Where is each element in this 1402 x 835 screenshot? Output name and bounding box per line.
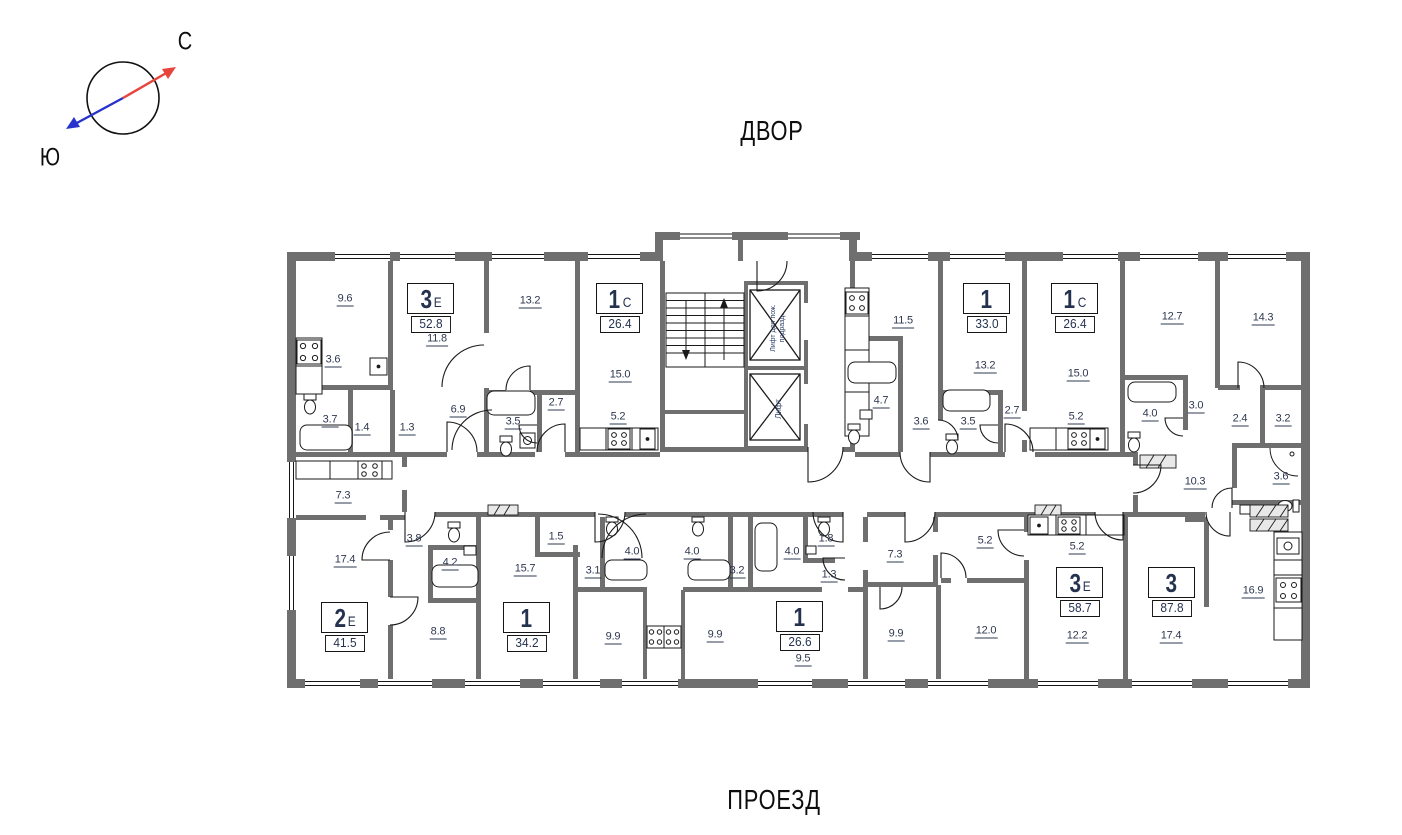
toilet-icon [848, 424, 860, 444]
bathtub-icon [300, 425, 352, 450]
apartment-tag: 3Е 58.7 [1056, 567, 1103, 617]
stove-icon [297, 340, 321, 364]
bathtub-icon [605, 560, 647, 580]
apartment-type: 2 [334, 605, 346, 631]
bathtub-icon [1128, 382, 1176, 402]
room-area-label: 17.4 [1160, 631, 1183, 644]
apartment-type-suffix: С [622, 295, 631, 309]
apartment-tag: 3Е 52.8 [407, 283, 454, 333]
room-area-label: 9.9 [707, 630, 724, 643]
compass-north-label: С [178, 28, 192, 57]
room-area-label: 3.7 [322, 415, 339, 428]
bathtub-icon [848, 362, 896, 383]
apartment-area: 26.6 [780, 634, 820, 651]
fridge-icon [1090, 429, 1105, 449]
apartment-type: 3 [1166, 570, 1178, 596]
stove-icon [608, 429, 630, 449]
room-area-label: 9.6 [337, 294, 354, 307]
apartment-type: 3 [1069, 570, 1081, 596]
room-area-label: 10.3 [1184, 477, 1207, 490]
apartment-area: 58.7 [1060, 600, 1100, 617]
room-area-label: 2.4 [1232, 414, 1249, 427]
apartment-area: 26.4 [600, 316, 640, 333]
room-area-label: 1.3 [821, 570, 838, 583]
stove-icon [1276, 578, 1301, 602]
room-area-label: 5.2 [1068, 412, 1085, 425]
room-area-label: 6.9 [450, 405, 467, 418]
room-area-label: 13.2 [519, 296, 542, 309]
room-area-label: 4.7 [873, 396, 890, 409]
apartment-type: 3 [420, 286, 432, 312]
room-area-label: 7.3 [887, 550, 904, 563]
apartment-area: 87.8 [1152, 600, 1192, 617]
room-area-label: 3.5 [960, 417, 977, 430]
apartment-type: 1 [981, 286, 993, 312]
compass-icon [66, 62, 176, 134]
room-area-label: 4.0 [1142, 409, 1159, 422]
room-area-label: 1.8 [818, 534, 835, 547]
room-area-label: 8.8 [430, 627, 447, 640]
apartment-tag: 1С 26.4 [1051, 283, 1098, 333]
room-area-label: 17.4 [334, 555, 357, 568]
room-area-label: 5.2 [1069, 542, 1086, 555]
apartment-tag: 1 33.0 [963, 283, 1010, 333]
room-area-label: 3.1 [585, 566, 602, 579]
fridge-icon [640, 429, 655, 449]
room-area-label: 3.6 [913, 417, 930, 430]
stove-icon [647, 626, 664, 648]
room-area-label: 3.5 [505, 417, 522, 430]
apartment-type-suffix: Е [1083, 579, 1091, 593]
sink-icon [1277, 538, 1299, 554]
room-area-label: 15.7 [514, 564, 537, 577]
driveway-label: ПРОЕЗД [727, 784, 821, 816]
bathtub-icon [688, 560, 730, 580]
room-area-label: 3.6 [325, 355, 342, 368]
room-area-label: 9.9 [888, 629, 905, 642]
room-area-label: 15.0 [1067, 369, 1090, 382]
room-area-label: 3.6 [1273, 472, 1290, 485]
room-area-label: 12.7 [1161, 312, 1184, 325]
room-area-label: 12.0 [975, 626, 998, 639]
floor-plan-drawing [0, 0, 1402, 835]
toilet-icon [448, 522, 460, 542]
room-area-label: 7.3 [335, 491, 352, 504]
toilet-icon [304, 394, 316, 414]
room-area-label: 2.7 [548, 398, 565, 411]
toilet-icon [500, 436, 512, 456]
apartment-tag: 2Е 41.5 [321, 602, 368, 652]
stove-icon [1068, 429, 1090, 449]
apartment-tag: 3 87.8 [1148, 567, 1195, 617]
stove-icon [358, 461, 382, 479]
sink-icon [860, 410, 872, 419]
stove-icon [664, 626, 681, 648]
apartment-tag: 1 26.6 [776, 601, 823, 651]
fridge-icon [370, 358, 387, 375]
apartment-tag: 1С 26.4 [596, 283, 643, 333]
floor-plan-page: С Ю ДВОР ПРОЕЗД Лифт для пож. подразд. Л… [0, 0, 1402, 835]
sink-icon [464, 546, 476, 555]
stove-icon [1058, 517, 1080, 534]
room-area-label: 1.3 [399, 423, 416, 436]
apartment-type: 1 [609, 286, 621, 312]
room-area-label: 9.9 [605, 632, 622, 645]
apartment-type: 1 [521, 605, 533, 631]
room-area-label: 12.2 [1066, 631, 1089, 644]
room-area-label: 4.0 [624, 547, 641, 560]
bathtub-icon [487, 391, 535, 415]
room-area-label: 5.2 [977, 536, 994, 549]
fridge-icon [1030, 517, 1048, 534]
stairs-icon [666, 293, 744, 367]
apartment-type-suffix: С [1077, 295, 1086, 309]
room-area-label: 5.2 [610, 412, 627, 425]
room-area-label: 3.8 [406, 534, 423, 547]
sink-icon [806, 546, 816, 554]
compass-south-label: Ю [40, 144, 60, 173]
room-area-label: 1.4 [354, 423, 371, 436]
stove-icon [846, 292, 868, 314]
room-area-label: 4.0 [784, 547, 801, 560]
apartment-area: 52.8 [411, 316, 451, 333]
room-area-label: 3.2 [729, 566, 746, 579]
fire-elevator-label: Лифт для пож. подразд. [750, 296, 808, 360]
bathtub-icon [755, 523, 777, 571]
room-area-label: 13.2 [974, 361, 997, 374]
apartment-type-suffix: Е [434, 295, 442, 309]
apartment-type: 1 [794, 604, 806, 630]
room-area-label: 1.5 [548, 532, 565, 545]
apartment-tag: 1 34.2 [503, 602, 550, 652]
toilet-icon [946, 434, 958, 454]
room-area-label: 16.9 [1242, 586, 1265, 599]
room-area-label: 4.2 [442, 558, 459, 571]
toilet-icon [1128, 432, 1140, 452]
apartment-area: 34.2 [507, 635, 547, 652]
apartment-type: 1 [1064, 286, 1076, 312]
apartment-area: 33.0 [967, 316, 1007, 333]
room-area-label: 15.0 [609, 370, 632, 383]
room-area-label: 9.5 [795, 654, 812, 667]
room-area-label: 3.0 [1188, 401, 1205, 414]
toilet-icon [692, 517, 704, 536]
apartment-type-suffix: Е [348, 614, 356, 628]
room-area-label: 2.7 [1004, 406, 1021, 419]
courtyard-label: ДВОР [740, 115, 803, 147]
apartment-area: 41.5 [325, 635, 365, 652]
room-area-label: 11.5 [892, 316, 914, 329]
room-area-label: 3.2 [1275, 414, 1292, 427]
apartment-area: 26.4 [1055, 316, 1095, 333]
bathtub-icon [943, 390, 990, 411]
room-area-label: 11.8 [426, 334, 448, 347]
room-area-label: 4.0 [684, 547, 701, 560]
elevator-label: Лифт [751, 377, 807, 441]
room-area-label: 14.3 [1252, 313, 1275, 326]
